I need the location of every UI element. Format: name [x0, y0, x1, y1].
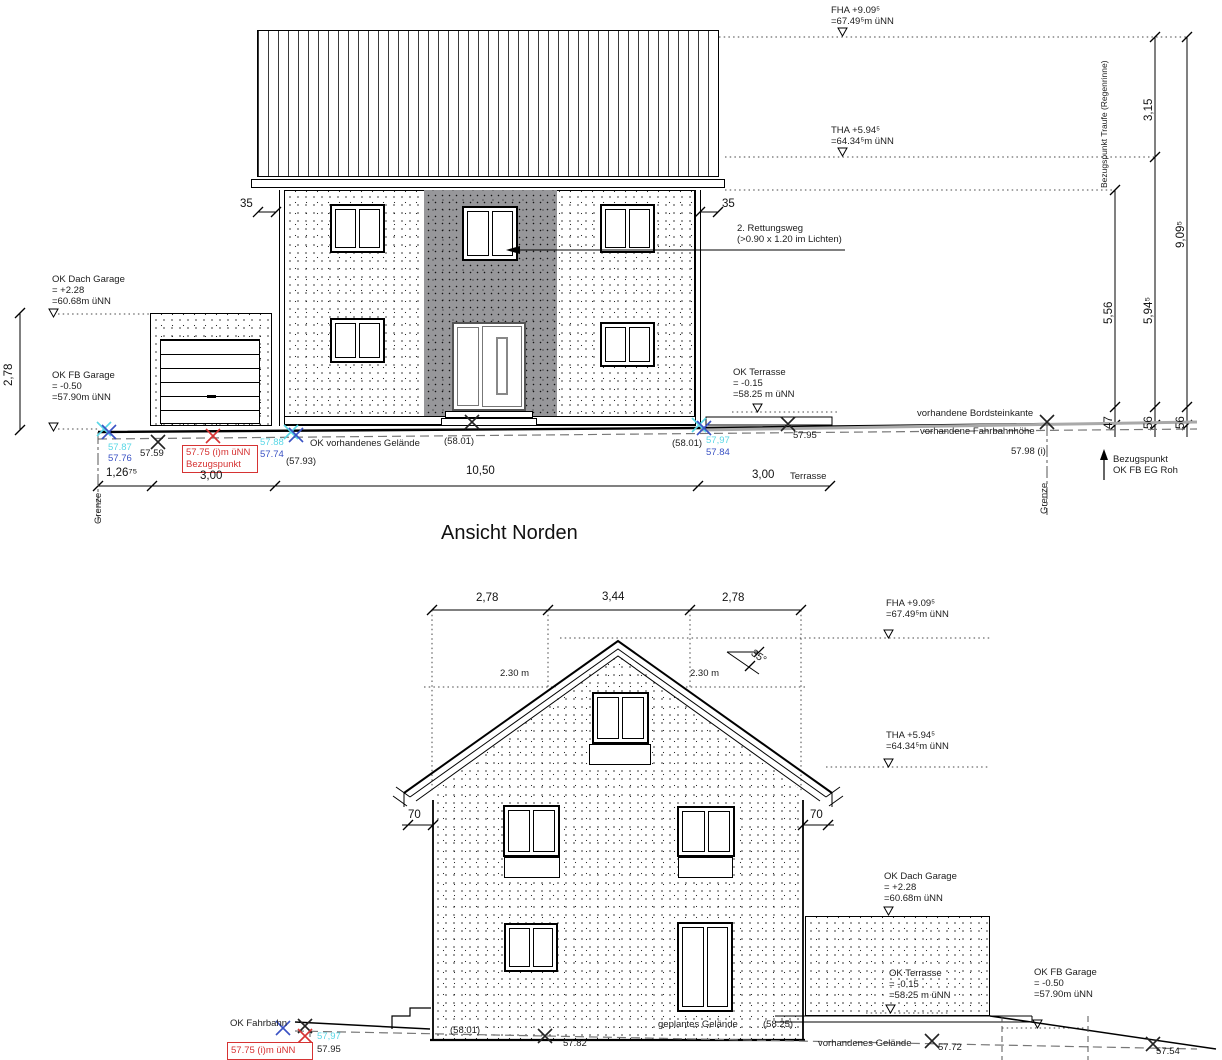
dim-300-a: 3,00	[200, 471, 222, 483]
ok-fb-garage-2e: =57.90m üNN	[1034, 990, 1093, 1001]
dim-1050: 10,50	[466, 466, 495, 478]
level2-5782: 57.82	[563, 1039, 587, 1050]
level-5793: (57.93)	[286, 457, 316, 468]
bezugspunkt-eg-2: OK FB EG Roh	[1113, 466, 1178, 477]
dim-35-right: 35	[722, 199, 735, 211]
architectural-sheet: FHA +9.09⁵ =67.49⁵m üNN THA +5.94⁵ =64.3…	[0, 0, 1222, 1060]
grenze-left: Grenze	[94, 493, 105, 524]
fha-elev: =67.49⁵m üNN	[831, 17, 894, 28]
bezugspunkt-red-box-2: 57.75 (i)m üNN	[227, 1042, 313, 1060]
dim-300-b: 3,00	[752, 470, 774, 482]
level2-5754: 57.54	[1156, 1047, 1180, 1058]
bezugspunkt-arrow	[1100, 449, 1108, 480]
level-triangles	[49, 28, 847, 431]
view1-linework	[0, 0, 1222, 560]
ok-terrasse-2e: =58.25 m üNN	[889, 991, 951, 1002]
level2-5825: (58.25)	[763, 1020, 793, 1031]
dim-70-left: 70	[408, 810, 421, 822]
fahrbahnhoehe-label: vorhandene Fahrbahnhöhe	[920, 427, 1035, 438]
level-cyan-5797: 57,97	[706, 436, 730, 447]
dim-230-right: 2.30 m	[690, 669, 719, 680]
dim-ticks	[403, 605, 833, 830]
level-5795: 57.95	[793, 431, 817, 442]
fha-elev-2: =67.49⁵m üNN	[886, 610, 949, 621]
geplantes-gelaende-label: geplantes Gelände	[658, 1020, 738, 1031]
ok-dach-garage-2e: =60.68m üNN	[884, 894, 943, 905]
level-blue-5774: 57.74	[260, 450, 284, 461]
dim-ticks	[15, 32, 1192, 491]
dim-278-garage: 2,78	[4, 364, 16, 386]
dim-56-a: 56	[1144, 416, 1156, 429]
ok-fb-garage-e: =57.90m üNN	[52, 393, 111, 404]
dim-344: 3,44	[602, 592, 624, 604]
dim-315: 3,15	[1144, 99, 1156, 121]
dim-35-left: 35	[240, 199, 253, 211]
ok-dach-garage-e: =60.68m üNN	[52, 297, 111, 308]
level-blue-5776: 57.76	[108, 454, 132, 465]
rescue-way-size: (>0.90 x 1.20 im Lichten)	[737, 235, 842, 246]
dim-47: 47	[1104, 416, 1116, 429]
tha-elev: =64.34⁵m üNN	[831, 137, 894, 148]
level-5759: 57.59	[140, 449, 164, 460]
dim-278-b: 2,78	[722, 593, 744, 605]
tha-elev-2: =64.34⁵m üNN	[886, 742, 949, 753]
dim-126: 1,26⁷⁵	[106, 468, 137, 480]
level-5798: 57.98 (i)	[1011, 447, 1046, 458]
terrace-slab	[706, 417, 832, 425]
level2-5772: 57.72	[938, 1043, 962, 1054]
level2-cyan-5797: 57,97	[317, 1032, 341, 1043]
dim-594: 5,94⁵	[1144, 297, 1156, 324]
dim-56-b: 56	[1176, 416, 1188, 429]
dim-909: 9,09⁵	[1176, 221, 1188, 248]
level-cyan-5788: 57.88	[260, 438, 284, 449]
vorhandenes-gelaende-label: vorhandenes Gelände	[818, 1039, 912, 1050]
bordsteinkante-label: vorhandene Bordsteinkante	[917, 409, 1033, 420]
dim-278-a: 2,78	[476, 593, 498, 605]
dim-70-right: 70	[810, 810, 823, 822]
view1-title: Ansicht Norden	[441, 522, 578, 545]
ok-fahrbahn-label: OK Fahrbahn	[230, 1019, 287, 1030]
level-5801-b: (58.01)	[672, 439, 702, 450]
rescue-leader	[506, 246, 845, 254]
red-level-2: 57.75 (i)m üNN	[231, 1046, 295, 1057]
level2-5795: 57.95	[317, 1045, 341, 1056]
ok-terrasse-e: =58.25 m üNN	[733, 390, 795, 401]
dim-556: 5,56	[1104, 302, 1116, 324]
bezugspunkt-traufe-label: Bezugspunkt Traufe (Regenrinne)	[1100, 60, 1110, 188]
dim-terrasse-label: Terrasse	[790, 472, 826, 483]
roof-lines	[393, 641, 843, 1040]
dim-230-left: 2.30 m	[500, 669, 529, 680]
level-5801-a: (58.01)	[444, 437, 474, 448]
level-blue-5784: 57.84	[706, 448, 730, 459]
gelaende-label: OK vorhandenes Gelände	[310, 439, 420, 450]
level2-5801: (58.01)	[450, 1026, 480, 1037]
red-level: 57.75 (i)m üNN	[186, 448, 250, 459]
grenze-right: Grenze	[1040, 483, 1051, 514]
bezugspunkt-red-box: 57.75 (i)m üNN Bezugspunkt	[182, 445, 258, 473]
